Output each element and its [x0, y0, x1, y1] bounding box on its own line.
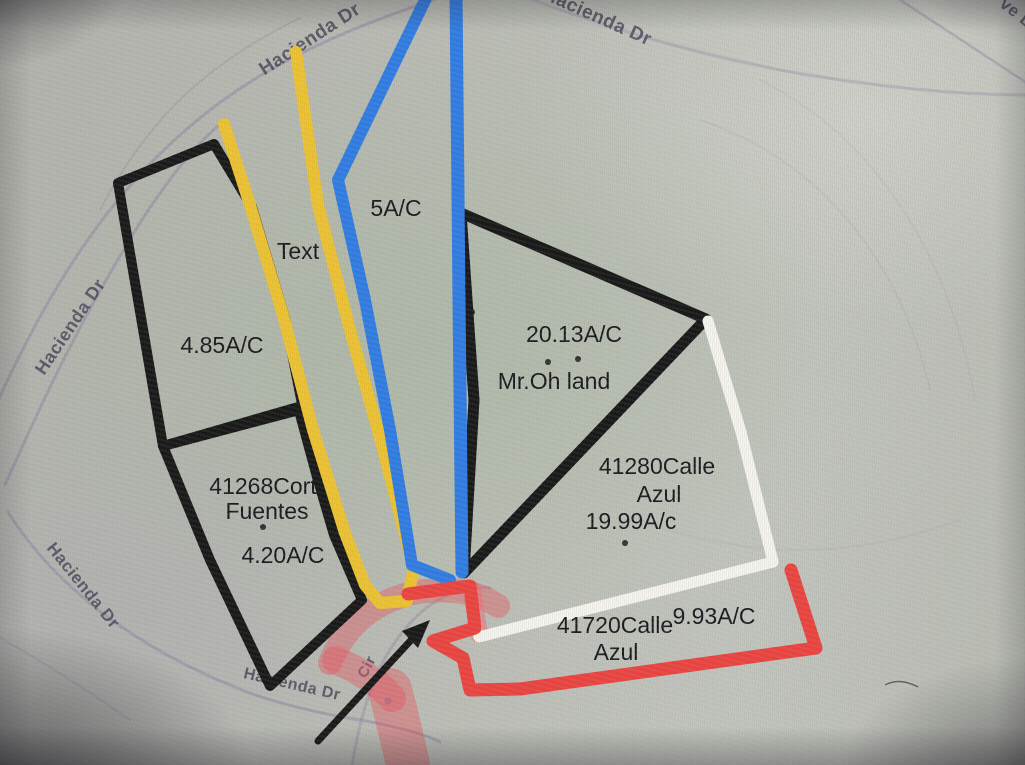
road-hacienda-mid-left — [5, 120, 225, 485]
parcel-text-placeholder: Text — [277, 238, 320, 264]
survey-dot — [465, 284, 471, 290]
white-line-east — [708, 321, 773, 562]
parcel-area-420: 4.20A/C — [241, 542, 324, 568]
street-label-hacienda-dr-mid-left: Hacienda Dr — [31, 275, 109, 378]
parcel-address-41280-line1: 41280Calle — [599, 453, 715, 479]
map-screenshot-photo: Hacienda Dr Hacienda Dr Hacienda Dr Haci… — [0, 0, 1025, 765]
parcel-address-41268-line2: Fuentes — [225, 498, 308, 524]
parcel-area-2013: 20.13A/C — [526, 321, 622, 347]
smudge-mark — [885, 681, 918, 687]
annotated-parcel-map: Hacienda Dr Hacienda Dr Hacienda Dr Haci… — [0, 0, 1025, 765]
survey-dot — [469, 309, 475, 315]
street-label-corner-partial: ve L — [996, 0, 1025, 31]
survey-dot — [575, 356, 581, 362]
parcel-address-41720-line2: Azul — [594, 639, 639, 665]
street-label-hacienda-dr-bottom-left: Hacienda Dr — [43, 539, 124, 632]
survey-dot — [545, 359, 551, 365]
parcel-area-1999: 19.99A/c — [586, 508, 677, 534]
contour-line — [640, 520, 960, 550]
road-branch-faint — [0, 635, 130, 720]
blue-boundary-lines — [338, 0, 462, 580]
contour-line — [700, 120, 930, 390]
street-label-hacienda-dr-top-left: Hacienda Dr — [255, 0, 364, 80]
contour-line — [760, 80, 975, 400]
parcel-area-993: 9.93A/C — [672, 603, 755, 629]
parcel-address-41268-line1: 41268Cort — [209, 473, 317, 499]
survey-dot — [260, 524, 266, 530]
parcel-area-5ac: 5A/C — [370, 195, 421, 221]
red-highlight-tail — [390, 690, 408, 765]
parcel-owner-mr-oh: Mr.Oh land — [498, 368, 611, 394]
survey-dot — [622, 540, 628, 546]
blue-line-main — [456, 0, 462, 572]
parcel-area-485: 4.85A/C — [180, 332, 263, 358]
parcel-address-41720-line1: 41720Calle — [557, 612, 673, 638]
parcel-address-41280-line2: Azul — [637, 481, 682, 507]
street-label-hacienda-dr-top-right: Hacienda Dr — [540, 0, 655, 50]
